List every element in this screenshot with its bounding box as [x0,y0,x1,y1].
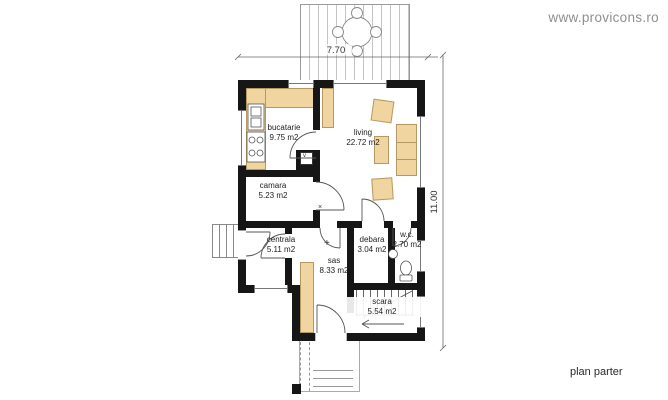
terrace-chair [352,8,363,19]
plus-marker: + [324,238,330,249]
stair-direction-arrow [362,320,404,328]
room-label-boiler: centrala 5.11 m2 [241,235,321,255]
room-name: w.c. [367,230,447,240]
room-label-hall: sas 8.33 m2 [294,256,374,276]
room-name: centrala [241,235,321,245]
entrance-door [317,305,345,333]
sink-basin [251,107,261,116]
stove-burner [257,150,263,156]
stove-burner [249,150,255,156]
room-label-living: living 22.72 m2 [323,128,403,148]
terrace-chair [371,27,382,38]
storage-door [362,199,384,221]
cross-marker: × [318,204,322,211]
room-area: 8.33 m2 [294,266,374,276]
terrace-chair [352,46,363,57]
plan-caption: plan parter [570,366,623,378]
website-link[interactable]: www.provicons.ro [548,10,659,25]
terrace-table [342,17,372,47]
plan-annotations: 7.70 11.00 [0,0,668,400]
room-label-pantry: camara 5.23 m2 [233,181,313,201]
height-dimension-label: 11.00 [429,190,440,213]
room-area: 22.72 m2 [323,138,403,148]
room-area: 5.54 m2 [342,307,422,317]
toilet-tank [400,275,412,281]
room-name: bucatarie [244,123,324,133]
room-name: living [323,128,403,138]
room-name: scara [342,297,422,307]
room-area: 9.75 m2 [244,133,324,143]
floor-plan-page: www.provicons.ro plan parter [0,0,668,400]
room-area: 5.23 m2 [233,191,313,201]
shaft-marker: v [303,153,306,159]
toilet-bowl [401,261,412,275]
room-label-wc: w.c. 2.70 m2 [367,230,447,250]
room-label-kitchen: bucatarie 9.75 m2 [244,123,324,143]
room-name: camara [233,181,313,191]
room-area: 2.70 m2 [367,240,447,250]
width-dimension-label: 7.70 [327,45,346,56]
terrace-chair [333,27,344,38]
room-label-stairs: scara 5.54 m2 [342,297,422,317]
room-name: sas [294,256,374,266]
room-area: 5.11 m2 [241,245,321,255]
